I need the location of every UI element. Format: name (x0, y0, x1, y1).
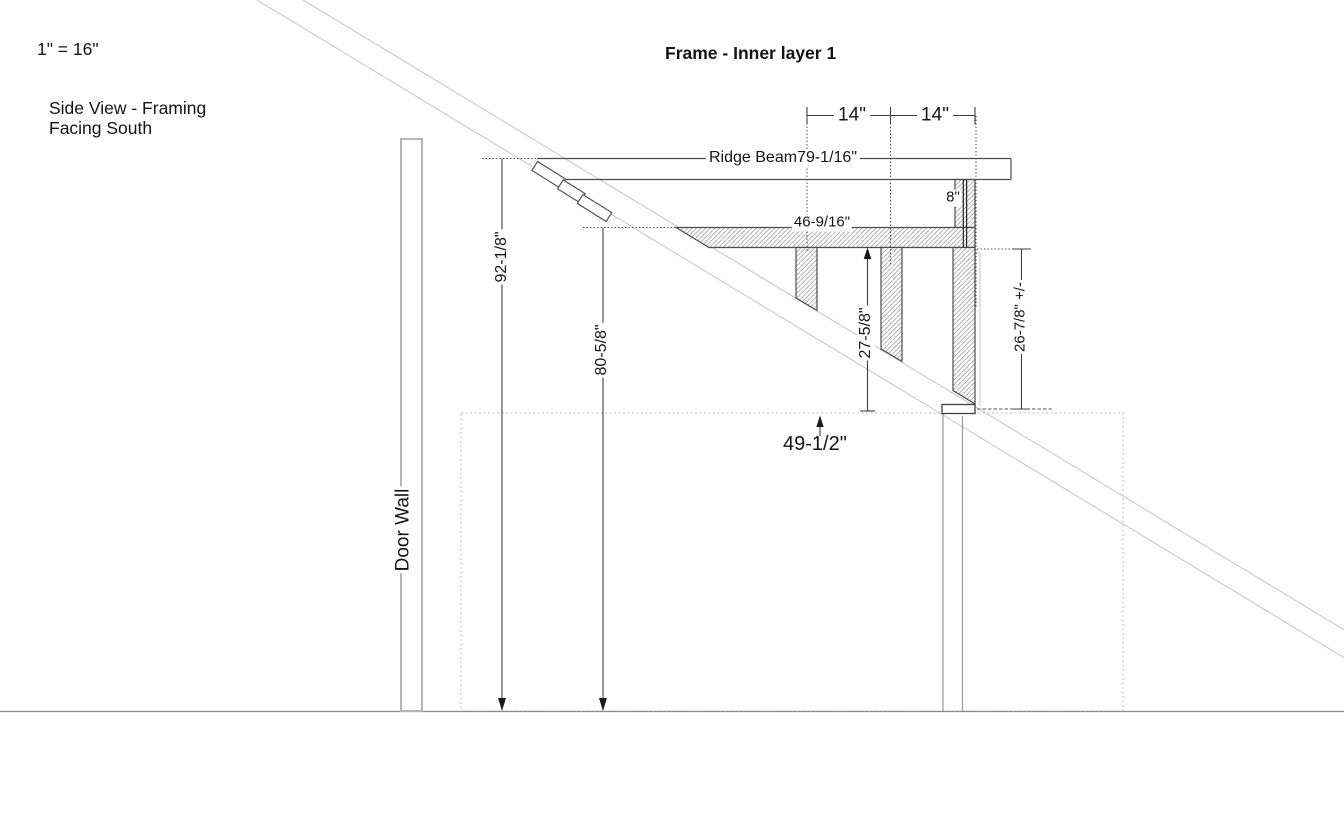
view-label: Side View - Framing Facing South (49, 99, 206, 138)
door-wall-label: Door Wall (392, 487, 413, 574)
framing-drawing-viewport: 1" = 16" Side View - Framing Facing Sout… (0, 0, 1344, 816)
scale-note: 1" = 16" (37, 40, 99, 60)
lower-structure-dotted-outline (461, 413, 1123, 711)
extension-lines (482, 116, 1031, 308)
view-label-line1: Side View - Framing (49, 99, 206, 119)
king-post-dimension: 8" (945, 190, 961, 207)
rafter-blocking (530, 162, 614, 222)
wall-height-dimension: 49-1/2" (783, 433, 847, 455)
ridge-beam-label: Ridge Beam79-1/16" (706, 149, 860, 167)
ridge-height-dimension: 92-1/8" (493, 229, 511, 284)
dimension-arrowheads (498, 248, 871, 712)
door-wall-stud (401, 139, 422, 711)
post-3 (953, 248, 975, 405)
bottom-plate (942, 405, 975, 414)
drawing-title: Frame - Inner layer 1 (665, 44, 836, 64)
view-label-line2: Facing South (49, 119, 206, 139)
post-2 (881, 248, 902, 362)
right-post-height-dimension: 26-7/8" +/- (1013, 280, 1030, 354)
stud-spacing-left-dimension: 14" (834, 104, 870, 125)
post-1 (796, 248, 817, 311)
outer-layer-stud-outline (975, 253, 980, 406)
beam-length-dimension: 46-9/16" (792, 215, 852, 232)
lower-wall-lines (943, 414, 963, 711)
beam-top-height-dimension: 80-5/8" (593, 322, 611, 377)
stud-spacing-right-dimension: 14" (917, 104, 953, 125)
post-height-dimension: 27-5/8" (857, 305, 875, 360)
